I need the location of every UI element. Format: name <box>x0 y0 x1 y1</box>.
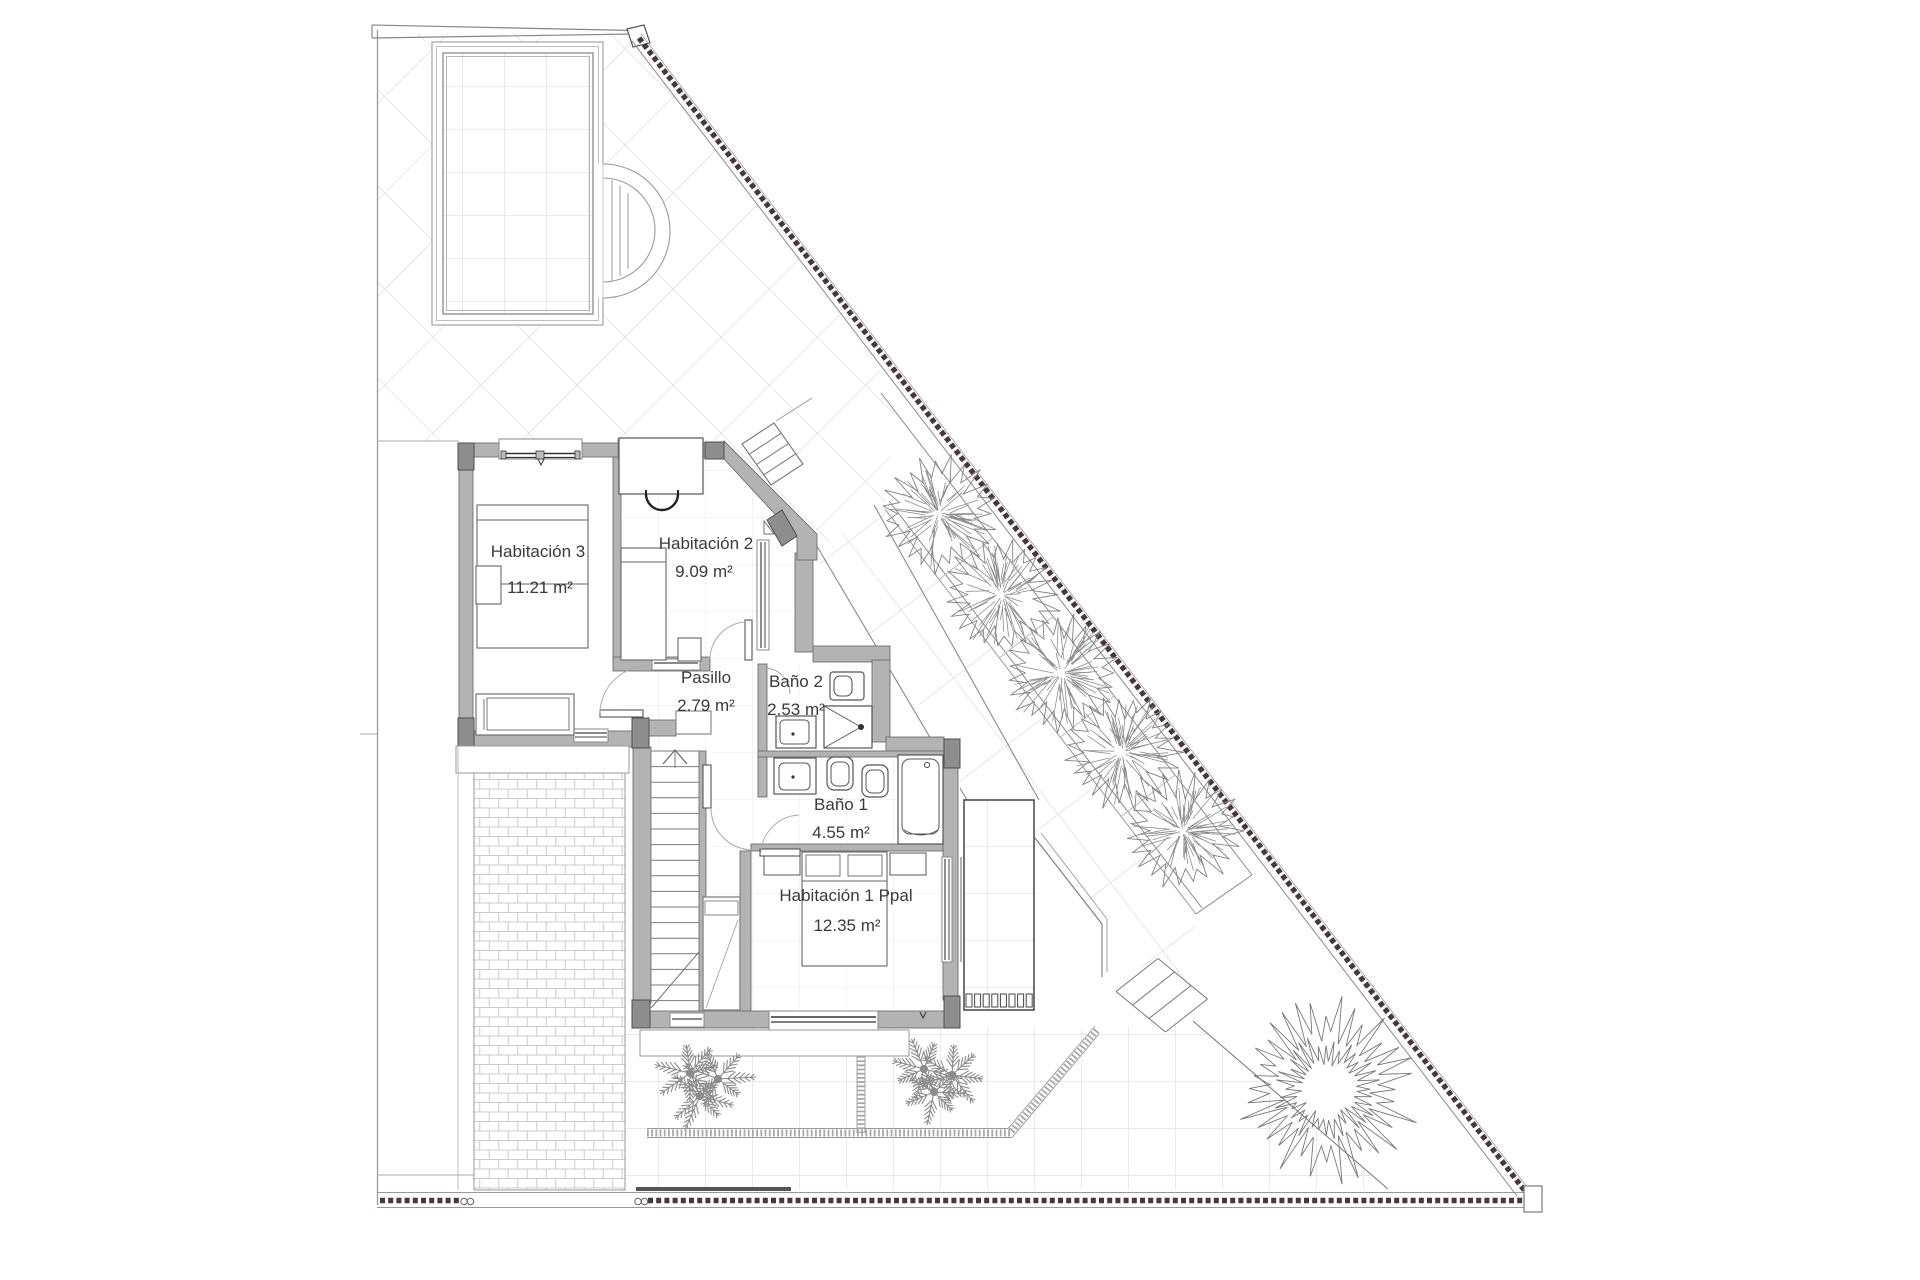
svg-text:Pasillo: Pasillo <box>681 668 731 687</box>
svg-text:Habitación 3: Habitación 3 <box>491 542 586 561</box>
svg-text:12.35 m²: 12.35 m² <box>813 916 880 935</box>
svg-text:4.55 m²: 4.55 m² <box>812 823 870 842</box>
svg-text:Baño 2: Baño 2 <box>769 672 823 691</box>
svg-text:2.79 m²: 2.79 m² <box>677 696 735 715</box>
svg-text:9.09 m²: 9.09 m² <box>675 562 733 581</box>
svg-text:11.21 m²: 11.21 m² <box>507 578 573 597</box>
svg-text:2.53 m²: 2.53 m² <box>767 700 825 719</box>
svg-text:Baño 1: Baño 1 <box>814 795 868 814</box>
svg-text:Habitación 2: Habitación 2 <box>659 534 754 553</box>
svg-text:Habitación 1 Ppal: Habitación 1 Ppal <box>779 886 912 905</box>
